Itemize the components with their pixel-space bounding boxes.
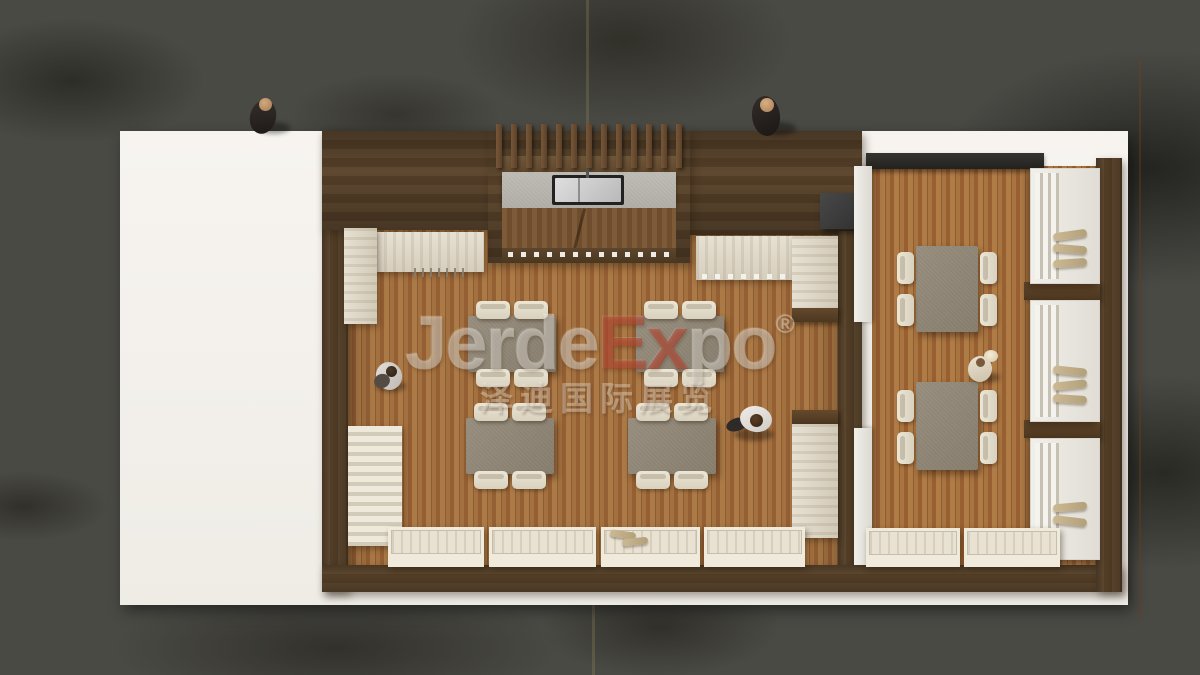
kitchen-sink <box>552 175 624 205</box>
console-top-left-horizontal <box>366 232 484 272</box>
shelf-bread <box>1053 258 1087 268</box>
rust-streak <box>1139 60 1141 620</box>
concrete-seam-top <box>586 0 589 131</box>
chair <box>636 403 670 421</box>
bottom-wall <box>322 565 1122 592</box>
chair <box>512 471 546 489</box>
pergola-slat <box>616 124 622 168</box>
wall-bench <box>866 528 960 567</box>
chair <box>644 369 678 387</box>
wall-bench <box>964 528 1060 567</box>
console-right-bottom-bracket <box>792 410 838 424</box>
chair <box>980 252 997 284</box>
chair <box>980 390 997 422</box>
chair <box>512 403 546 421</box>
pergola-slat <box>511 124 517 168</box>
main-room-top-wall-left <box>322 131 490 230</box>
chair <box>514 369 548 387</box>
display-shelf-unit <box>1030 300 1100 422</box>
pergola-slat <box>631 124 637 168</box>
chair <box>474 403 508 421</box>
kitchen-inner-floor <box>502 208 676 250</box>
chair <box>980 432 997 464</box>
kitchen-dishes <box>508 252 670 257</box>
chair <box>897 252 914 284</box>
console-top-left-vertical <box>344 228 377 324</box>
chair <box>897 390 914 422</box>
chair <box>474 471 508 489</box>
pergola-slat <box>541 124 547 168</box>
chair <box>476 301 510 319</box>
wall-bench <box>489 527 596 567</box>
shelf-bread <box>1053 502 1088 513</box>
shelf-bracket <box>1024 282 1100 300</box>
chair <box>644 301 678 319</box>
dining-table <box>636 316 724 372</box>
chair <box>476 369 510 387</box>
sink-divider <box>578 178 580 202</box>
side-room-top-counter <box>866 153 1044 169</box>
dining-table <box>916 382 978 470</box>
dining-table <box>466 418 554 474</box>
pergola-slat <box>661 124 667 168</box>
wall-bench <box>388 527 484 567</box>
chair <box>980 294 997 326</box>
chair <box>636 471 670 489</box>
wall-bench <box>704 527 805 567</box>
pergola-slat <box>556 124 562 168</box>
chair <box>674 403 708 421</box>
pergola-slat <box>646 124 652 168</box>
chair <box>897 432 914 464</box>
chair <box>682 369 716 387</box>
pergola-slat <box>676 124 682 168</box>
chair <box>682 301 716 319</box>
hanging-utensils <box>414 268 466 277</box>
display-shelf-unit <box>1030 168 1100 284</box>
pergola-slat <box>571 124 577 168</box>
side-room-left-wall-upper <box>854 166 872 322</box>
pergola-slat <box>496 124 502 168</box>
pergola-slat <box>601 124 607 168</box>
chair <box>514 301 548 319</box>
console-right-top <box>792 236 838 312</box>
pergola-slat <box>526 124 532 168</box>
console-right-top-bracket <box>792 308 838 322</box>
chair <box>897 294 914 326</box>
concrete-seam-bottom <box>592 605 595 675</box>
pergola-slat <box>586 124 592 168</box>
console-right-bottom <box>792 424 838 538</box>
shelf-bracket <box>1024 420 1100 438</box>
chair <box>674 471 708 489</box>
dining-table <box>628 418 716 474</box>
dining-table <box>916 246 978 332</box>
sink-basin <box>555 178 621 202</box>
dining-table <box>468 316 556 372</box>
scene-root: JerdeExpo® 泽迪国际展览 <box>0 0 1200 675</box>
